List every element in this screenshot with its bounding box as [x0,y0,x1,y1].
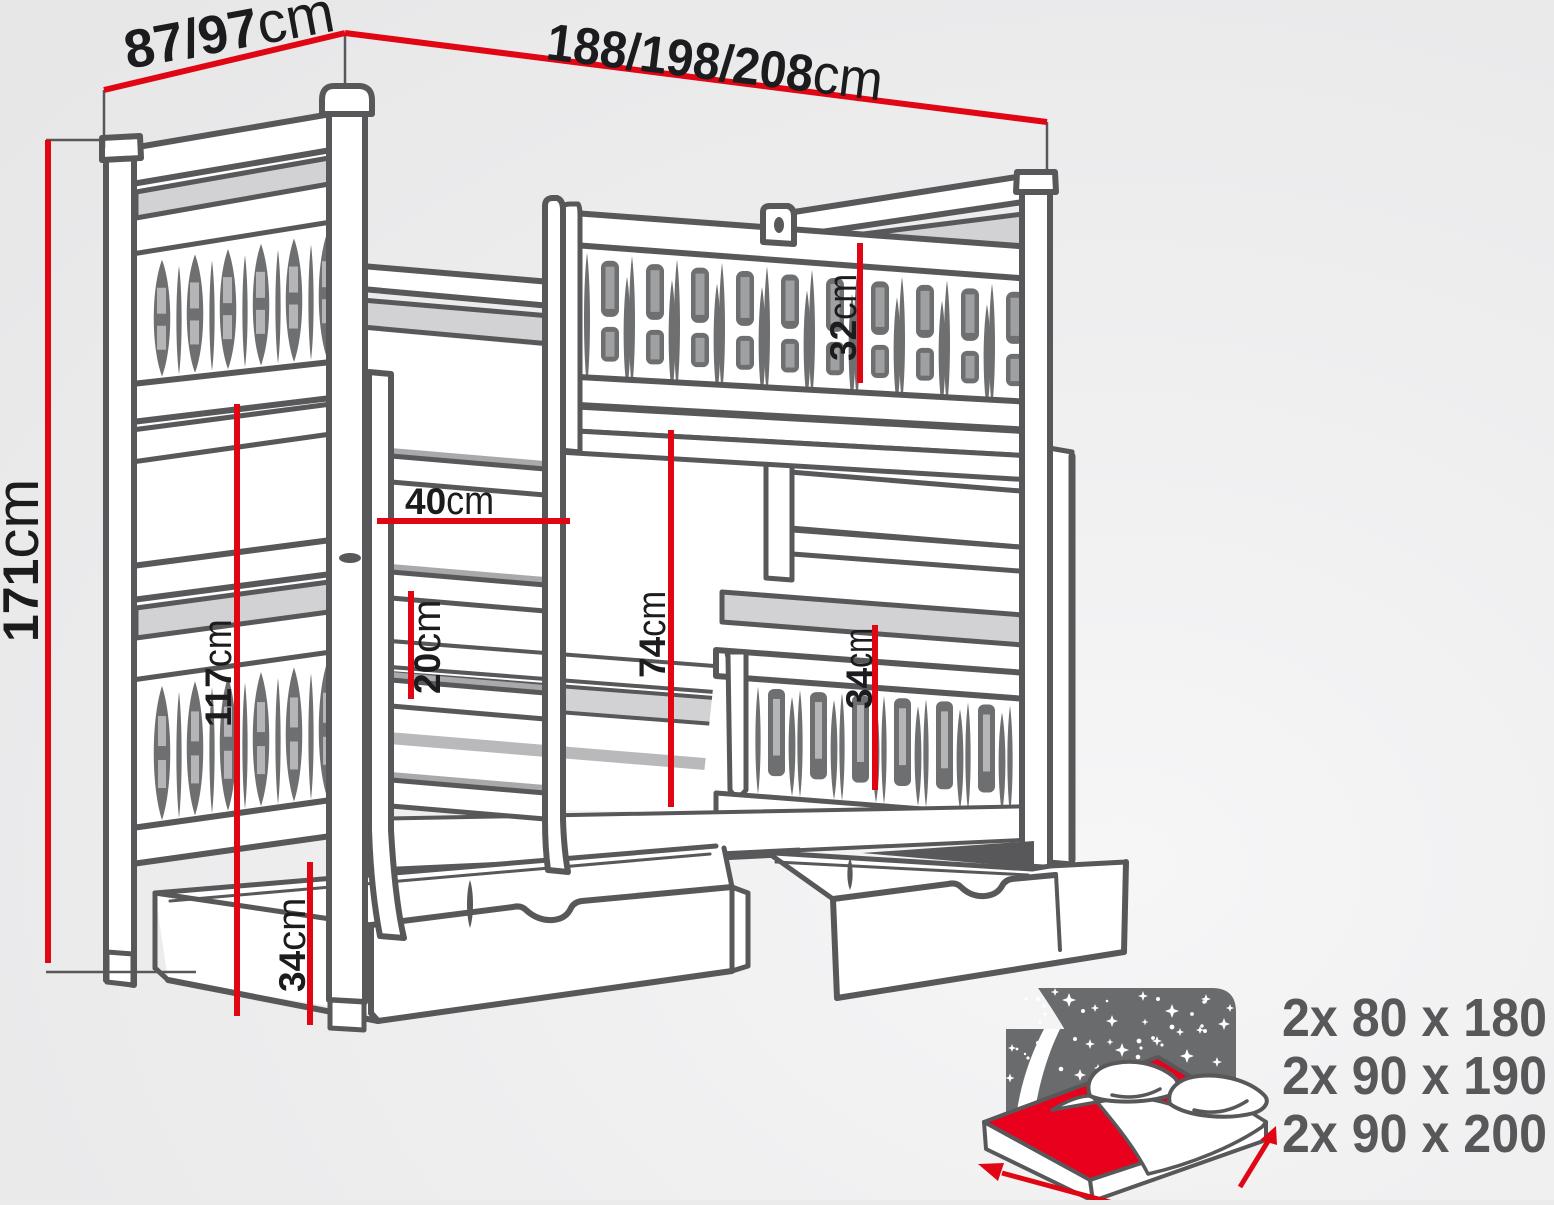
svg-text:2x 80 x 180: 2x 80 x 180 [1282,988,1547,1048]
svg-text:34cm: 34cm [837,628,881,709]
svg-text:40cm: 40cm [405,479,494,523]
svg-text:34cm: 34cm [270,898,314,992]
svg-text:32cm: 32cm [821,274,865,361]
svg-text:20cm: 20cm [405,600,449,694]
svg-text:171cm: 171cm [0,479,51,642]
svg-text:117cm: 117cm [196,619,240,727]
svg-text:2x 90 x 200: 2x 90 x 200 [1282,1104,1547,1164]
svg-text:2x 90 x 190: 2x 90 x 190 [1282,1046,1547,1106]
svg-text:74cm: 74cm [630,591,674,678]
